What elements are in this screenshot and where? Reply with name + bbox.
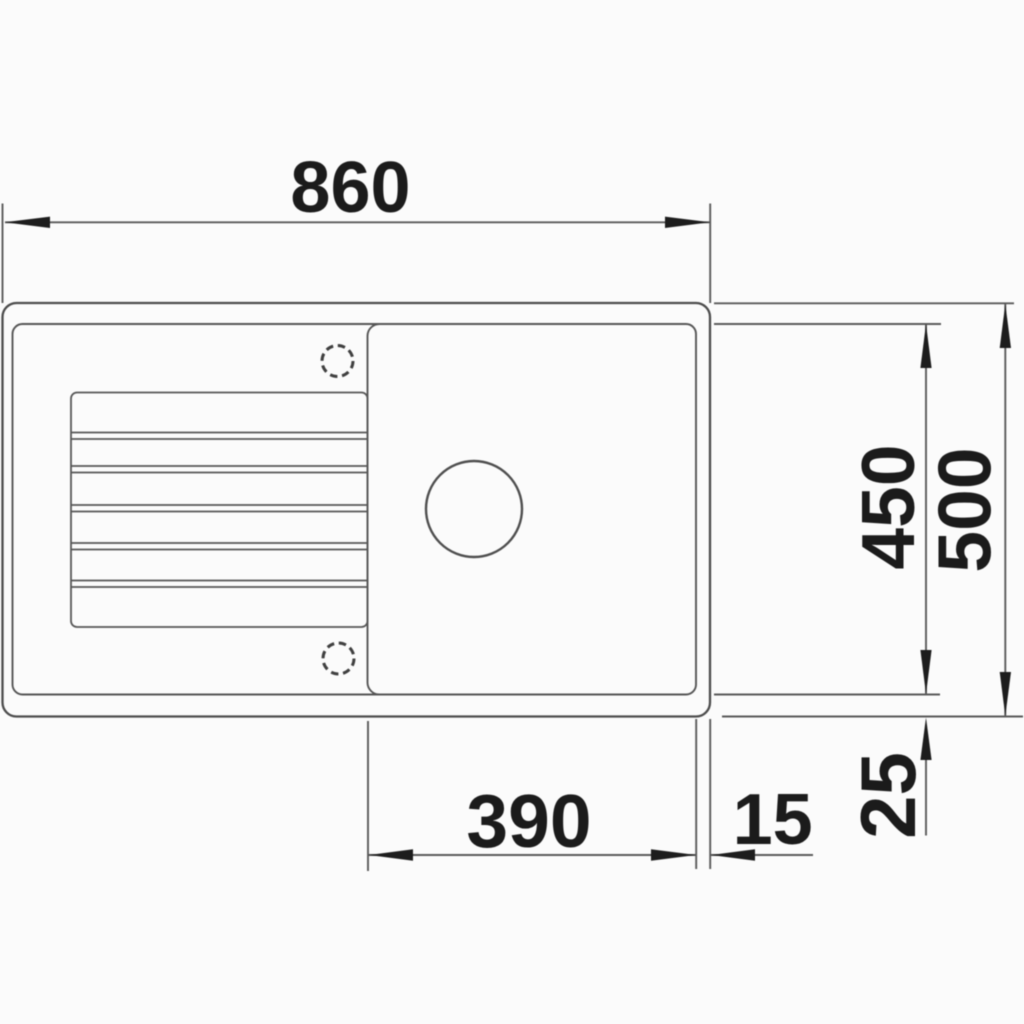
svg-text:25: 25: [844, 752, 932, 839]
svg-text:860: 860: [290, 148, 410, 228]
svg-text:450: 450: [846, 444, 930, 569]
svg-text:390: 390: [466, 779, 591, 863]
svg-text:15: 15: [733, 780, 813, 860]
svg-text:500: 500: [922, 447, 1006, 572]
